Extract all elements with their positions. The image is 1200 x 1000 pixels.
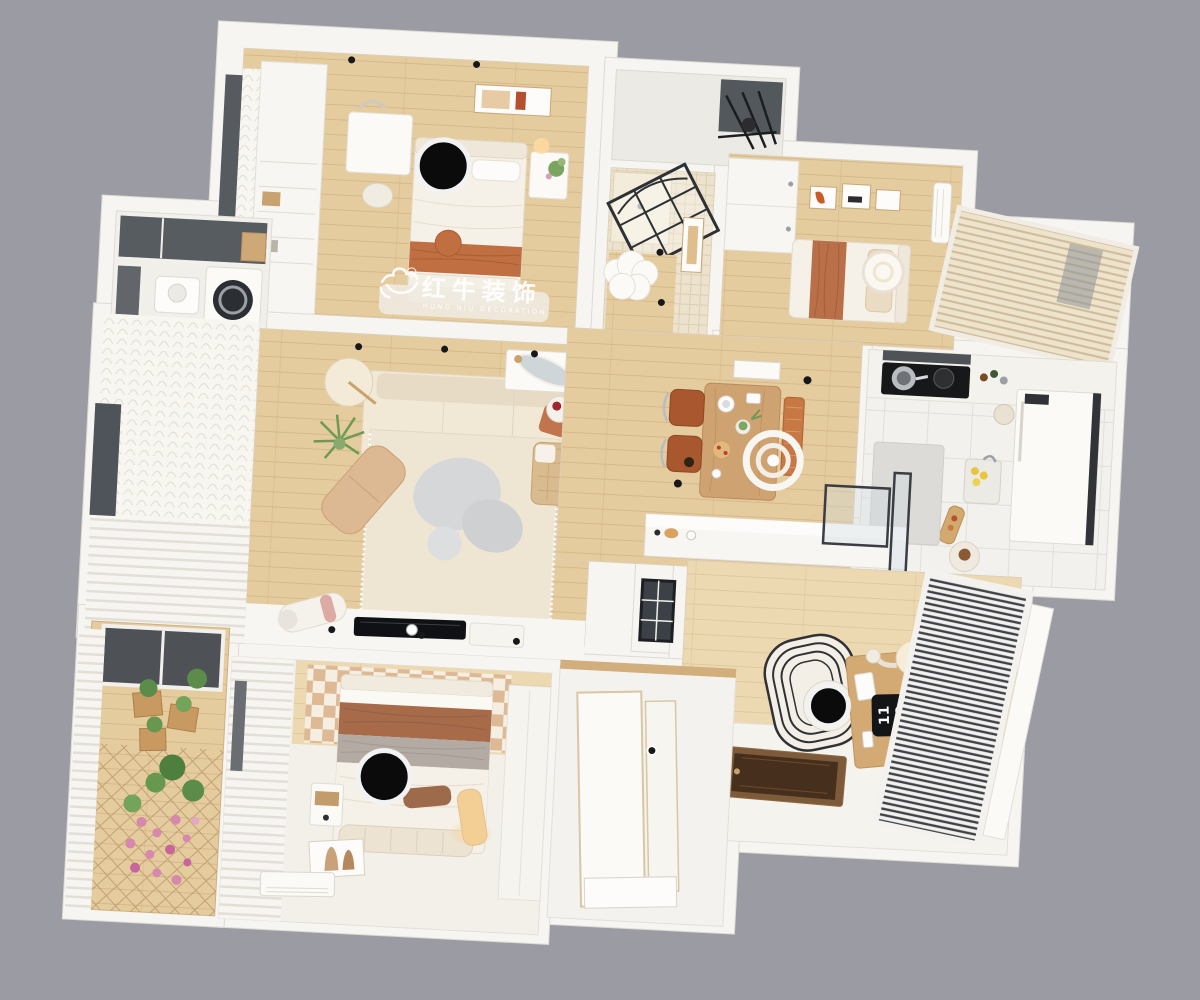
privacy-mask-study [807, 685, 849, 727]
laundry-shelf [241, 232, 266, 261]
privacy-mask-master [357, 749, 412, 804]
downlight [647, 746, 656, 755]
master-ac-unit [260, 872, 334, 897]
privacy-mask-bedroom1 [416, 139, 471, 194]
balcony-lattice [77, 743, 223, 916]
bowl [993, 404, 1014, 425]
picture-frame-bedroom1 [474, 84, 551, 116]
ceiling-vent [734, 360, 781, 379]
ceiling-lamp [862, 251, 904, 293]
corridor-planks [577, 691, 679, 907]
master-nightstand [310, 783, 344, 827]
floor-plan-render: 11 12 [0, 0, 1200, 1000]
entry-door [723, 746, 847, 806]
cup [686, 531, 695, 540]
black-frame-window [640, 580, 675, 642]
ac-unit-bedroom2 [931, 183, 952, 244]
vanity-desk [346, 112, 413, 175]
dining-table [699, 383, 781, 501]
flower-balcony [65, 620, 230, 919]
art-print [309, 839, 365, 878]
stove [881, 362, 971, 399]
bathroom [600, 160, 722, 353]
flip-clock-top-digits: 11 [877, 705, 893, 725]
wardrobe-slot [262, 191, 281, 206]
registered-mark: ® [408, 270, 414, 277]
corridor-step [584, 877, 677, 909]
drying-balcony [612, 70, 786, 169]
entry-corridor [547, 660, 736, 927]
kitchen-sink [963, 455, 1001, 504]
fridge [1009, 389, 1101, 545]
